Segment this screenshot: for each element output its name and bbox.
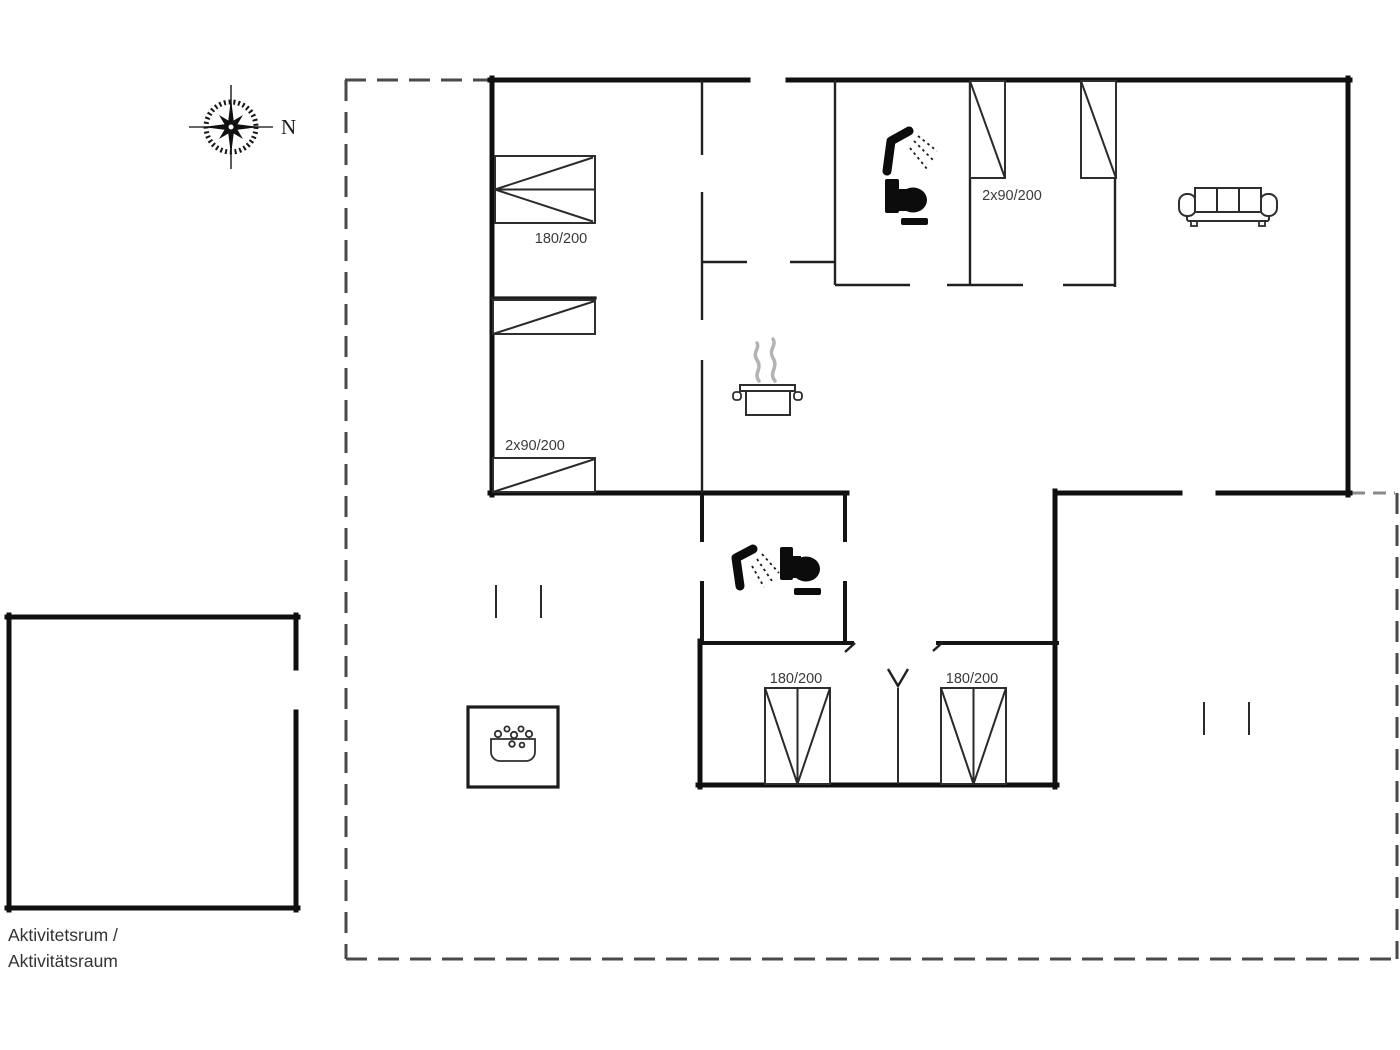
activity-room-label-line1: Aktivitetsrum / xyxy=(8,925,118,945)
bed-double-bottom-left xyxy=(765,688,830,784)
toilet-icon xyxy=(780,547,821,595)
bed-double-bottom-right xyxy=(941,688,1006,784)
exterior-walls xyxy=(490,78,1350,787)
bed-label-bottom-right: 180/200 xyxy=(946,671,998,687)
activity-room-walls xyxy=(7,615,298,910)
floor-plan-canvas: N 180/200 2x90/200 2x90/200 180/200 180/… xyxy=(0,0,1400,1050)
floor-plan-drawing: N 180/200 2x90/200 2x90/200 180/200 180/… xyxy=(0,0,1400,1050)
shower-icon xyxy=(887,131,937,171)
bed-double-top-left xyxy=(495,156,595,223)
activity-room-label: Aktivitetsrum / Aktivitätsraum xyxy=(8,925,118,971)
toilet-icon xyxy=(885,179,928,225)
bed-label-top-left: 180/200 xyxy=(535,231,587,247)
terrace-post-marks xyxy=(496,585,1249,735)
door-swing-icon xyxy=(845,642,943,652)
shower-icon xyxy=(736,549,779,587)
bed-single-left-upper xyxy=(493,300,595,334)
bed-label-bottom-left: 180/200 xyxy=(770,671,822,687)
compass-north-label: N xyxy=(281,115,296,139)
bed-single-top-b xyxy=(1081,81,1116,178)
bed-single-top-a xyxy=(970,81,1005,178)
bed-label-left-singles: 2x90/200 xyxy=(505,438,565,454)
hot-tub-icon xyxy=(468,707,558,787)
compass-rose-icon xyxy=(189,85,273,169)
cooking-pot-icon xyxy=(733,339,802,415)
bed-single-left-lower xyxy=(493,458,595,492)
activity-room-label-line2: Aktivitätsraum xyxy=(8,951,118,971)
partition-v-marker xyxy=(888,669,908,686)
sofa-icon xyxy=(1179,188,1277,226)
bed-label-top-singles: 2x90/200 xyxy=(982,188,1042,204)
